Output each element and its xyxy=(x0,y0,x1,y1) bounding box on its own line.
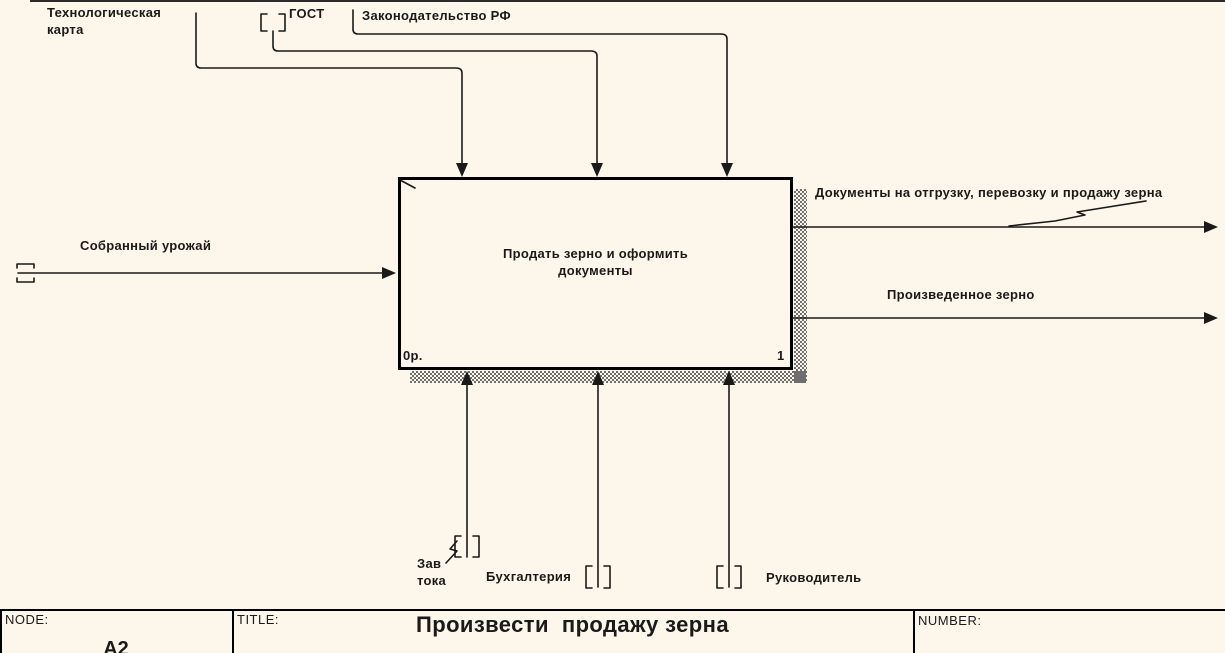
boundary-bracket-icon xyxy=(17,278,34,282)
output-arrow-dokumenty[interactable] xyxy=(793,201,1218,233)
boundary-bracket-icon xyxy=(473,536,479,557)
control-arrow-gost[interactable] xyxy=(261,14,603,177)
boundary-bracket-icon xyxy=(17,264,34,268)
control-arrow-zakon[interactable] xyxy=(353,10,733,177)
activity-corner-mark xyxy=(400,180,415,188)
squiggle-icon xyxy=(1009,201,1146,226)
control-label-gost: ГОСТ xyxy=(289,5,325,22)
boundary-bracket-icon xyxy=(586,566,592,588)
boundary-bracket-icon xyxy=(279,14,285,31)
output-arrow-zerno[interactable] xyxy=(793,312,1218,324)
mechanism-label-buhgalteriya: Бухгалтерия xyxy=(486,568,571,585)
mechanism-label-rukovoditel: Руководитель xyxy=(766,569,861,586)
arrow-layer xyxy=(0,0,1225,653)
boundary-bracket-icon xyxy=(261,14,267,31)
boundary-bracket-icon xyxy=(735,566,741,588)
output-label-zerno: Произведенное зерно xyxy=(887,286,1035,303)
mechanism-arrow-zav-toka[interactable] xyxy=(446,371,479,563)
idef0-diagram-canvas: Продать зерно и оформить документы 0р. 1 xyxy=(0,0,1225,653)
mechanism-arrow-buhgalteriya[interactable] xyxy=(586,371,610,588)
control-label-zakon: Законодательство РФ xyxy=(362,7,511,24)
control-arrow-tech-karta[interactable] xyxy=(196,13,468,177)
boundary-bracket-icon xyxy=(455,536,461,557)
footer-top-border xyxy=(0,609,1225,611)
boundary-bracket-icon xyxy=(604,566,610,588)
mechanism-arrow-rukovoditel[interactable] xyxy=(717,371,741,588)
title-field-value: Произвести продажу зерна xyxy=(232,612,913,638)
input-arrow-urozhay[interactable] xyxy=(17,264,396,282)
output-label-dokumenty: Документы на отгрузку, перевозку и прода… xyxy=(815,184,1162,201)
footer-divider-title-number xyxy=(913,611,915,653)
mechanism-label-zav-toka: Зав тока xyxy=(417,555,459,589)
boundary-bracket-icon xyxy=(717,566,723,588)
control-label-tech-karta: Технологическая карта xyxy=(47,4,179,38)
number-field-label: NUMBER: xyxy=(918,613,981,628)
node-field-value: A2 xyxy=(0,638,232,653)
input-label-urozhay: Собранный урожай xyxy=(80,237,211,254)
node-field-label: NODE: xyxy=(5,612,49,627)
